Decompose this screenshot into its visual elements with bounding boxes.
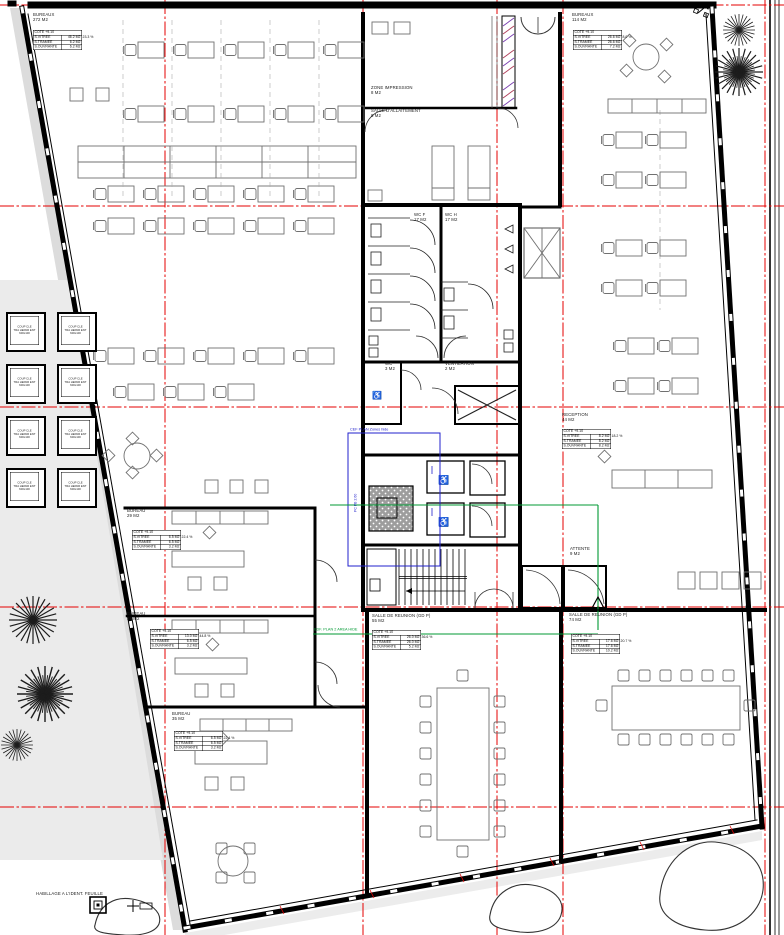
room-label-wc-f: WC F17 M2 [414, 212, 426, 222]
skylight-box: COUP CLETRA HEPAR ENT600x100 [6, 468, 46, 508]
room-label-wc: WC3 M2 [385, 361, 395, 371]
finish-note: HABILLAGE A L'IDENT. FEUILLE [36, 891, 103, 896]
floor-plan-drawing: ♿ ♿ ♿ [0, 0, 784, 935]
skylight-box: COUP CLETRA HEPAR ENT600x100 [57, 312, 97, 352]
room-label-bureaux-114: BUREAUX114 M2 [572, 12, 593, 22]
skylight-box: COUP CLETRA HEPAR ENT600x100 [57, 468, 97, 508]
wheelchair-icon: ♿ [372, 390, 382, 400]
area-table-reunion-55: COTE +9.10S.VITREE26.0 M236.6 %S.TRAMEE2… [372, 630, 421, 650]
room-label-ventilation: VENTILATION2 M2 [445, 361, 474, 371]
room-label-bureaux-272: BUREAUX272 M2 [33, 12, 54, 22]
room-label-bureau-1: BUREAU29 M2 [127, 508, 146, 518]
room-label-attente: ATTENTE9 M2 [570, 546, 590, 556]
area-table-reception: COTE +9.10S.VITREE8.2 M218.2 %S.TRAMEE8.… [562, 429, 611, 449]
area-table-bureau-1: COTE +9.10S.VITREE6.5 M222.4 %S.TRAMEE6.… [132, 530, 181, 550]
blue-side-note: PC PB 2.60 [354, 494, 358, 512]
room-label-bureau-3: BUREAU35 M2 [172, 711, 191, 721]
tree-icon [9, 596, 57, 644]
site-boundary [770, 0, 779, 935]
area-table-bureaux-114: COTE +9.10S.VITREE26.6 M28.0 %S.TRAMEE26… [573, 30, 622, 50]
room-label-bureau-2: BUREAU29 M2 [127, 611, 146, 621]
area-table-bureau-2: COTE +9.10S.VITREE13.0 M244.8 %S.TRAMEE6… [150, 629, 199, 649]
skylight-box: COUP CLETRA HEPAR ENT600x100 [6, 416, 46, 456]
area-table-bureau-3: COTE +9.10S.VITREE6.5 M222.4 %S.TRAMEE6.… [174, 731, 223, 751]
site-areas [0, 8, 762, 935]
round-table [633, 44, 659, 70]
locker-wall [492, 16, 515, 108]
skylight-box: COUP CLETRA HEPAR ENT600x100 [6, 364, 46, 404]
room-label-reunion-55: SALLE DE REUNION (GD P)55 M2 [372, 613, 430, 623]
green-zone-note: EDF. PLAN 2 AREA HIDE [314, 627, 357, 632]
blue-zone-note: CEF PLAN Zones hide [350, 427, 388, 432]
room-label-reception: RECEPTION44 M2 [562, 412, 588, 422]
skylight-box: COUP CLETRA HEPAR ENT600x100 [57, 364, 97, 404]
room-label-reunion-74: SALLE DE REUNION (GD P)74 M2 [569, 612, 627, 622]
room-label-zone-impression: ZONE IMPRESSION8 M2 [371, 85, 413, 95]
skylight-box: COUP CLETRA HEPAR ENT600x100 [57, 416, 97, 456]
core-vertical-circulation: ♿ ♿ ♿ [367, 390, 505, 605]
area-table-reunion-74: COTE +9.10S.VITREE17.6 M220.7 %S.TRAMEE1… [571, 634, 620, 654]
staircase [367, 549, 467, 605]
plan-linework: ♿ ♿ ♿ [0, 0, 784, 935]
furniture [70, 20, 761, 883]
tree-icon [1, 729, 33, 761]
room-label-allaitement: SALLE D'ALLAITEMENT8 M2 [371, 108, 421, 118]
room-label-wc-h: WC H17 M2 [445, 212, 457, 222]
green-zone-line [313, 505, 598, 634]
area-table-bureaux-272: COTE +9.10S.VITREE46.2 M223.3 %S.TRAMEE6… [33, 30, 82, 50]
tree-icon [723, 14, 755, 46]
skylight-box: COUP CLETRA HEPAR ENT600x100 [6, 312, 46, 352]
